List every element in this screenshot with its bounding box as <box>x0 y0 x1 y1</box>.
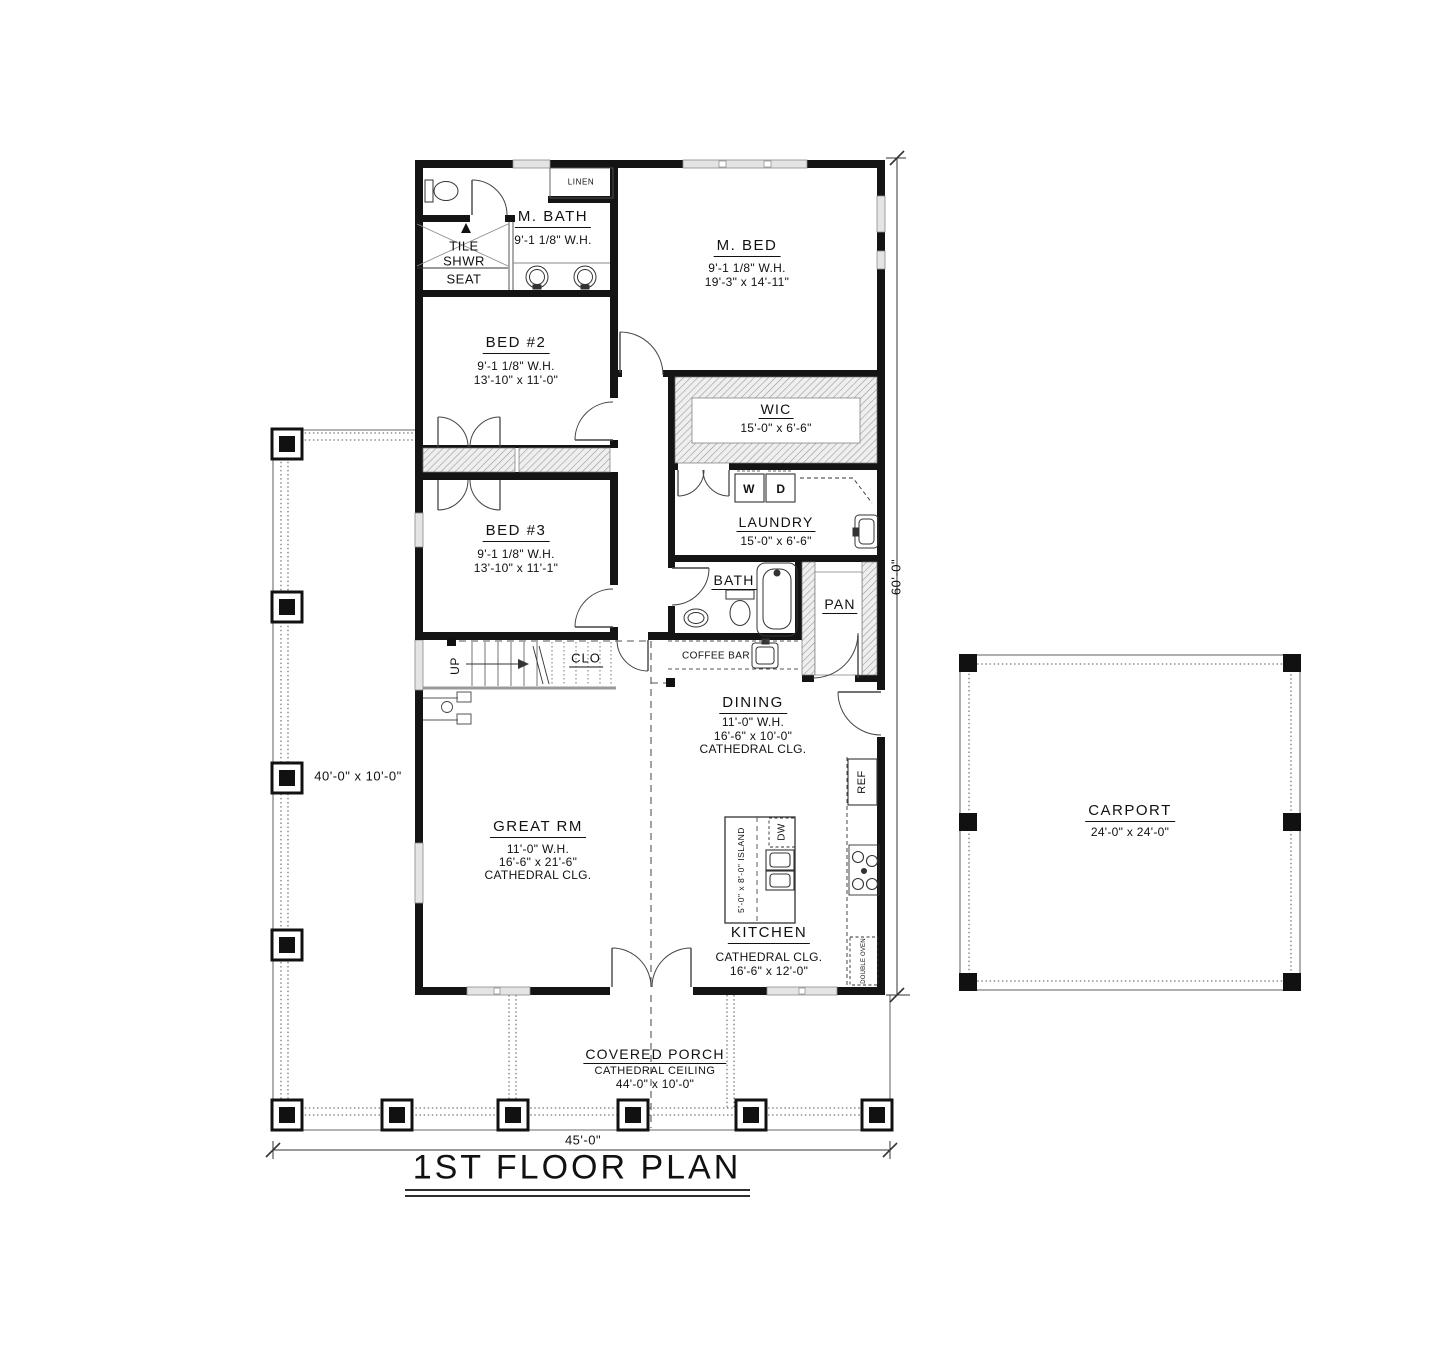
covered-porch-size: 44'-0" x 10'-0" <box>616 1077 694 1091</box>
bed3-size: 13'-10" x 11'-1" <box>474 561 558 575</box>
overall-height-dimension: 60'-0" <box>889 559 904 595</box>
fridge-label: REF <box>856 770 868 794</box>
room-label-carport: CARPORT <box>1085 802 1175 822</box>
room-label-pantry: PAN <box>822 596 857 614</box>
room-label-laundry: LAUNDRY <box>736 514 815 532</box>
room-label-great-rm: GREAT RM <box>490 818 586 838</box>
stairs-up-label: UP <box>448 657 462 675</box>
floor-plan-drawing: LINEN M. BATH 9'-1 1/8" W.H. TILE SHWR S… <box>0 0 1445 1368</box>
bed2-size: 13'-10" x 11'-0" <box>474 373 558 387</box>
room-label-closet: CLO <box>569 651 603 668</box>
covered-porch-ceiling: CATHEDRAL CEILING <box>595 1065 716 1077</box>
great-rm-wall-height: 11'-0" W.H. <box>507 842 569 856</box>
dishwasher-label: DW <box>777 823 788 840</box>
room-label-m-bed: M. BED <box>714 237 781 257</box>
kitchen-ceiling: CATHEDRAL CLG. <box>716 950 823 964</box>
overall-width-dimension: 45'-0" <box>565 1133 601 1148</box>
washer-label: W <box>743 482 755 496</box>
bed2-wall-height: 9'-1 1/8" W.H. <box>477 359 554 373</box>
room-label-bed3: BED #3 <box>483 522 550 542</box>
island-size-label: 5'-0" x 8'-0" ISLAND <box>736 827 746 913</box>
tile-shower-label-1: TILE <box>449 239 478 254</box>
drawing-title: 1ST FLOOR PLAN <box>413 1149 742 1188</box>
room-label-wic: WIC <box>759 401 794 419</box>
coffee-bar-label: COFFEE BAR <box>682 651 750 662</box>
shower-seat-label: SEAT <box>447 272 482 287</box>
m-bed-size: 19'-3" x 14'-11" <box>705 275 789 289</box>
m-bed-wall-height: 9'-1 1/8" W.H. <box>708 261 785 275</box>
room-label-dining: DINING <box>719 694 787 714</box>
room-label-bath: BATH <box>711 572 756 590</box>
double-oven-label: DOUBLE OVEN <box>861 938 867 984</box>
bed3-wall-height: 9'-1 1/8" W.H. <box>477 547 554 561</box>
great-rm-ceiling: CATHEDRAL CLG. <box>485 868 592 882</box>
dining-ceiling: CATHEDRAL CLG. <box>700 742 807 756</box>
room-label-m-bath: M. BATH <box>515 208 591 228</box>
m-bath-wall-height: 9'-1 1/8" W.H. <box>514 233 591 247</box>
laundry-size: 15'-0" x 6'-6" <box>740 534 811 548</box>
dining-size: 16'-6" x 10'-0" <box>714 729 792 743</box>
carport-outline <box>959 654 1301 991</box>
room-label-covered-porch: COVERED PORCH <box>583 1046 726 1064</box>
wic-size: 15'-0" x 6'-6" <box>740 421 811 435</box>
carport-size: 24'-0" x 24'-0" <box>1091 825 1169 839</box>
dryer-label: D <box>776 482 785 496</box>
linen-closet-label: LINEN <box>568 178 595 187</box>
kitchen-size: 16'-6" x 12'-0" <box>730 964 808 978</box>
dining-wall-height: 11'-0" W.H. <box>722 715 784 729</box>
room-label-kitchen: KITCHEN <box>728 924 810 944</box>
laundry-appliances <box>735 471 872 503</box>
great-rm-size: 16'-6" x 21'-6" <box>499 855 577 869</box>
room-label-bed2: BED #2 <box>483 334 550 354</box>
left-porch-dimension: 40'-0" x 10'-0" <box>314 769 401 784</box>
tile-shower-label-2: SHWR <box>443 254 485 269</box>
